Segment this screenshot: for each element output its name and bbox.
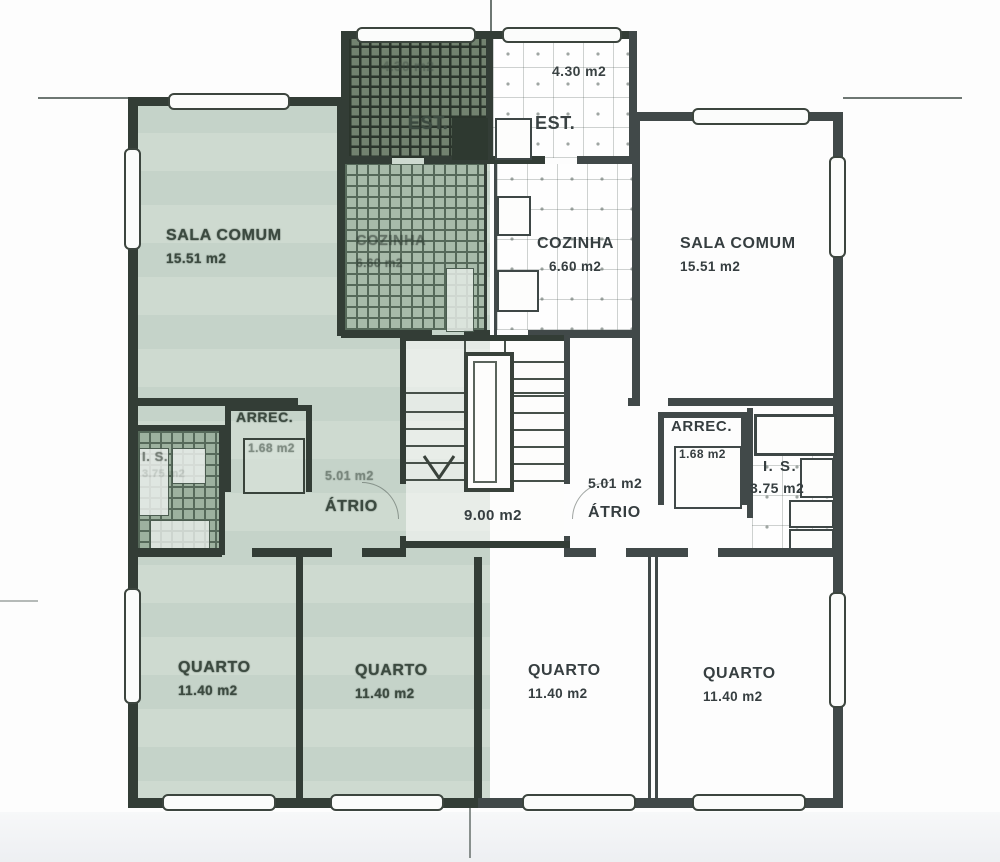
room-label-arrec-left: ARREC. 1.68 m2 [236, 410, 295, 454]
wall [668, 398, 843, 406]
room-name: I. S. [142, 450, 185, 463]
room-name: QUARTO [528, 663, 601, 679]
room-label-is-right: I. S. 3.75 m2 [763, 459, 804, 495]
room-area: 15.51 m2 [166, 252, 282, 266]
room-area: 15.51 m2 [680, 260, 796, 274]
room-name: COZINHA [537, 236, 614, 252]
room-label-sala-comum-right: SALA COMUM 15.51 m2 [680, 236, 796, 274]
wall [128, 425, 225, 431]
wall [400, 330, 406, 341]
scan-shadow [0, 812, 1000, 862]
stair-treads [506, 346, 564, 484]
floor-plan: 4.30 m2 EST. 4.30 m2 EST. SALA COMUM 15.… [0, 0, 1000, 862]
guide-line [38, 97, 130, 99]
room-name: EST. [408, 114, 448, 132]
room-area: 5.01 m2 [588, 476, 642, 490]
wall [628, 398, 640, 406]
room-label-atrio-right: 5.01 m2 ÁTRIO [588, 476, 642, 521]
room-label-cozinha-left: COZINHA 6.60 m2 [356, 234, 426, 269]
wall [632, 112, 640, 406]
wall [362, 548, 406, 557]
window [356, 27, 476, 43]
duct-shaft [452, 118, 488, 160]
wall [564, 330, 570, 341]
duct-shaft [495, 118, 532, 160]
window [168, 93, 290, 110]
window [162, 794, 276, 811]
stairwell-area-label: 9.00 m2 [464, 508, 522, 523]
wall [225, 405, 231, 492]
wall [337, 104, 345, 336]
room-area: 1.68 m2 [679, 448, 732, 460]
wall [219, 425, 225, 555]
room-name: COZINHA [356, 234, 426, 249]
wall [626, 548, 688, 557]
wall [648, 557, 651, 798]
room-area: 11.40 m2 [355, 687, 428, 701]
window [124, 148, 141, 250]
wall [341, 156, 392, 164]
room-area: 3.75 m2 [750, 481, 804, 495]
room-name: ÁTRIO [325, 499, 378, 515]
room-name: ÁTRIO [588, 505, 642, 521]
room-label-quarto-2-right: QUARTO 11.40 m2 [703, 666, 776, 704]
kitchen-counter [497, 270, 539, 312]
window [829, 592, 846, 708]
window [330, 794, 444, 811]
room-area: 11.40 m2 [528, 687, 601, 701]
room-area: 1.68 m2 [248, 442, 295, 454]
wall [564, 335, 570, 484]
room-name: I. S. [763, 459, 804, 474]
room-name: QUARTO [703, 666, 776, 682]
wall [484, 164, 487, 338]
room-name: QUARTO [355, 663, 428, 679]
wall [400, 335, 570, 341]
room-area: 5.01 m2 [325, 470, 378, 483]
washbasin [800, 458, 834, 498]
room-label-quarto-2-left: QUARTO 11.40 m2 [355, 663, 428, 701]
room-label-sala-comum-left: SALA COMUM 15.51 m2 [166, 228, 282, 266]
stair-down-arrow-icon [404, 446, 474, 488]
wall [400, 541, 570, 548]
wall [747, 408, 753, 518]
room-area: 4.30 m2 [382, 60, 434, 74]
room-name: ARREC. [236, 410, 295, 424]
room-area: 3.75 m2 [142, 469, 185, 480]
kitchen-counter [446, 268, 474, 332]
wall [718, 548, 843, 557]
wall [564, 548, 596, 557]
guide-line [490, 0, 492, 33]
wall [474, 557, 482, 798]
room-label-est-left: EST. [408, 114, 448, 132]
wall [577, 156, 637, 164]
wall [296, 557, 303, 798]
room-label-est-right-area: 4.30 m2 [552, 64, 606, 78]
bathtub [754, 414, 837, 456]
room-label-est-left-area: 4.30 m2 [382, 60, 434, 74]
window [502, 27, 622, 43]
guide-line [0, 600, 38, 602]
window [522, 794, 636, 811]
room-area: 6.60 m2 [356, 257, 426, 269]
guide-line [469, 808, 471, 858]
window [692, 794, 806, 811]
room-name: EST. [535, 114, 575, 132]
room-area: 9.00 m2 [464, 508, 522, 523]
bathroom-fixture [150, 520, 210, 550]
wall [128, 548, 222, 557]
wall [252, 548, 332, 557]
room-name: ARREC. [671, 419, 732, 434]
guide-line [843, 97, 962, 99]
room-name: SALA COMUM [166, 228, 282, 244]
wall [655, 557, 658, 798]
newel-inner [473, 361, 497, 483]
room-area: 11.40 m2 [178, 684, 251, 698]
room-name: SALA COMUM [680, 236, 796, 252]
room-label-quarto-1-right: QUARTO 11.40 m2 [528, 663, 601, 701]
room-area: 4.30 m2 [552, 64, 606, 78]
room-label-is-left: I. S. 3.75 m2 [142, 450, 185, 480]
room-area: 11.40 m2 [703, 690, 776, 704]
wall [658, 412, 664, 505]
room-label-est-right: EST. [535, 114, 575, 132]
room-area: 6.60 m2 [549, 260, 614, 274]
room-label-atrio-left: 5.01 m2 ÁTRIO [325, 470, 378, 515]
window [829, 156, 846, 258]
room-label-cozinha-right: COZINHA 6.60 m2 [537, 236, 614, 274]
room-name: QUARTO [178, 660, 251, 676]
kitchen-counter [497, 196, 531, 236]
room-label-arrec-right: ARREC. 1.68 m2 [671, 419, 732, 460]
room-label-quarto-1-left: QUARTO 11.40 m2 [178, 660, 251, 698]
window [124, 588, 141, 704]
wall [306, 405, 312, 492]
toilet [789, 500, 834, 528]
window [692, 108, 810, 125]
